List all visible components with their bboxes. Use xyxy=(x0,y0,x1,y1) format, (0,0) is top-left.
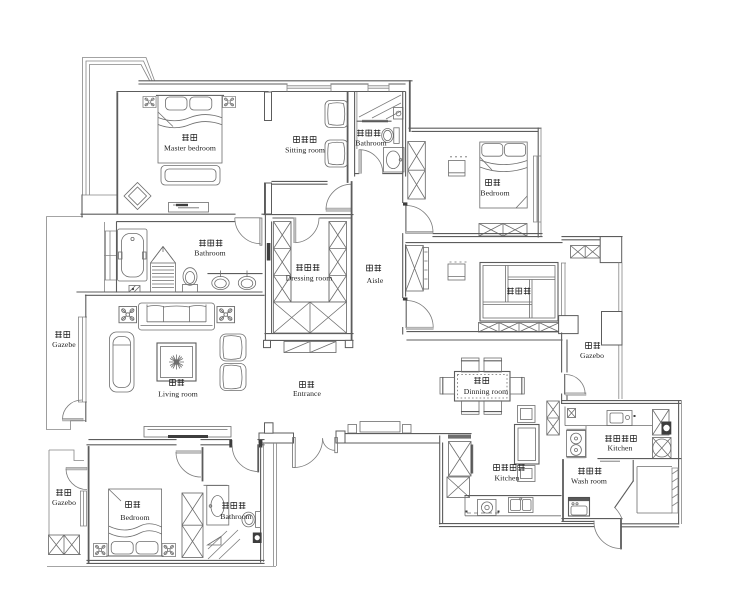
svg-text:Aisle: Aisle xyxy=(367,276,384,285)
svg-text:Dinning room: Dinning room xyxy=(464,387,509,396)
svg-text:Bathroom: Bathroom xyxy=(194,249,226,258)
svg-text:Gazebe: Gazebe xyxy=(52,340,76,349)
svg-text:Bedroom: Bedroom xyxy=(120,513,149,522)
svg-text:Bathroom: Bathroom xyxy=(220,512,252,521)
svg-text:Entrance: Entrance xyxy=(293,389,322,398)
svg-text:Kitchen: Kitchen xyxy=(607,444,632,453)
svg-text:Kitchen: Kitchen xyxy=(494,474,519,483)
svg-text:Bathroom: Bathroom xyxy=(355,139,387,148)
svg-text:Dressing room: Dressing room xyxy=(286,274,333,283)
svg-text:Master bedroom: Master bedroom xyxy=(164,144,216,153)
svg-text:Bedroom: Bedroom xyxy=(480,189,509,198)
svg-text:Sitting room: Sitting room xyxy=(285,146,325,155)
svg-text:Wash room: Wash room xyxy=(571,477,607,486)
svg-text:Gazebo: Gazebo xyxy=(580,351,604,360)
svg-text:Living room: Living room xyxy=(158,390,198,399)
svg-text:Gazebo: Gazebo xyxy=(52,498,76,507)
